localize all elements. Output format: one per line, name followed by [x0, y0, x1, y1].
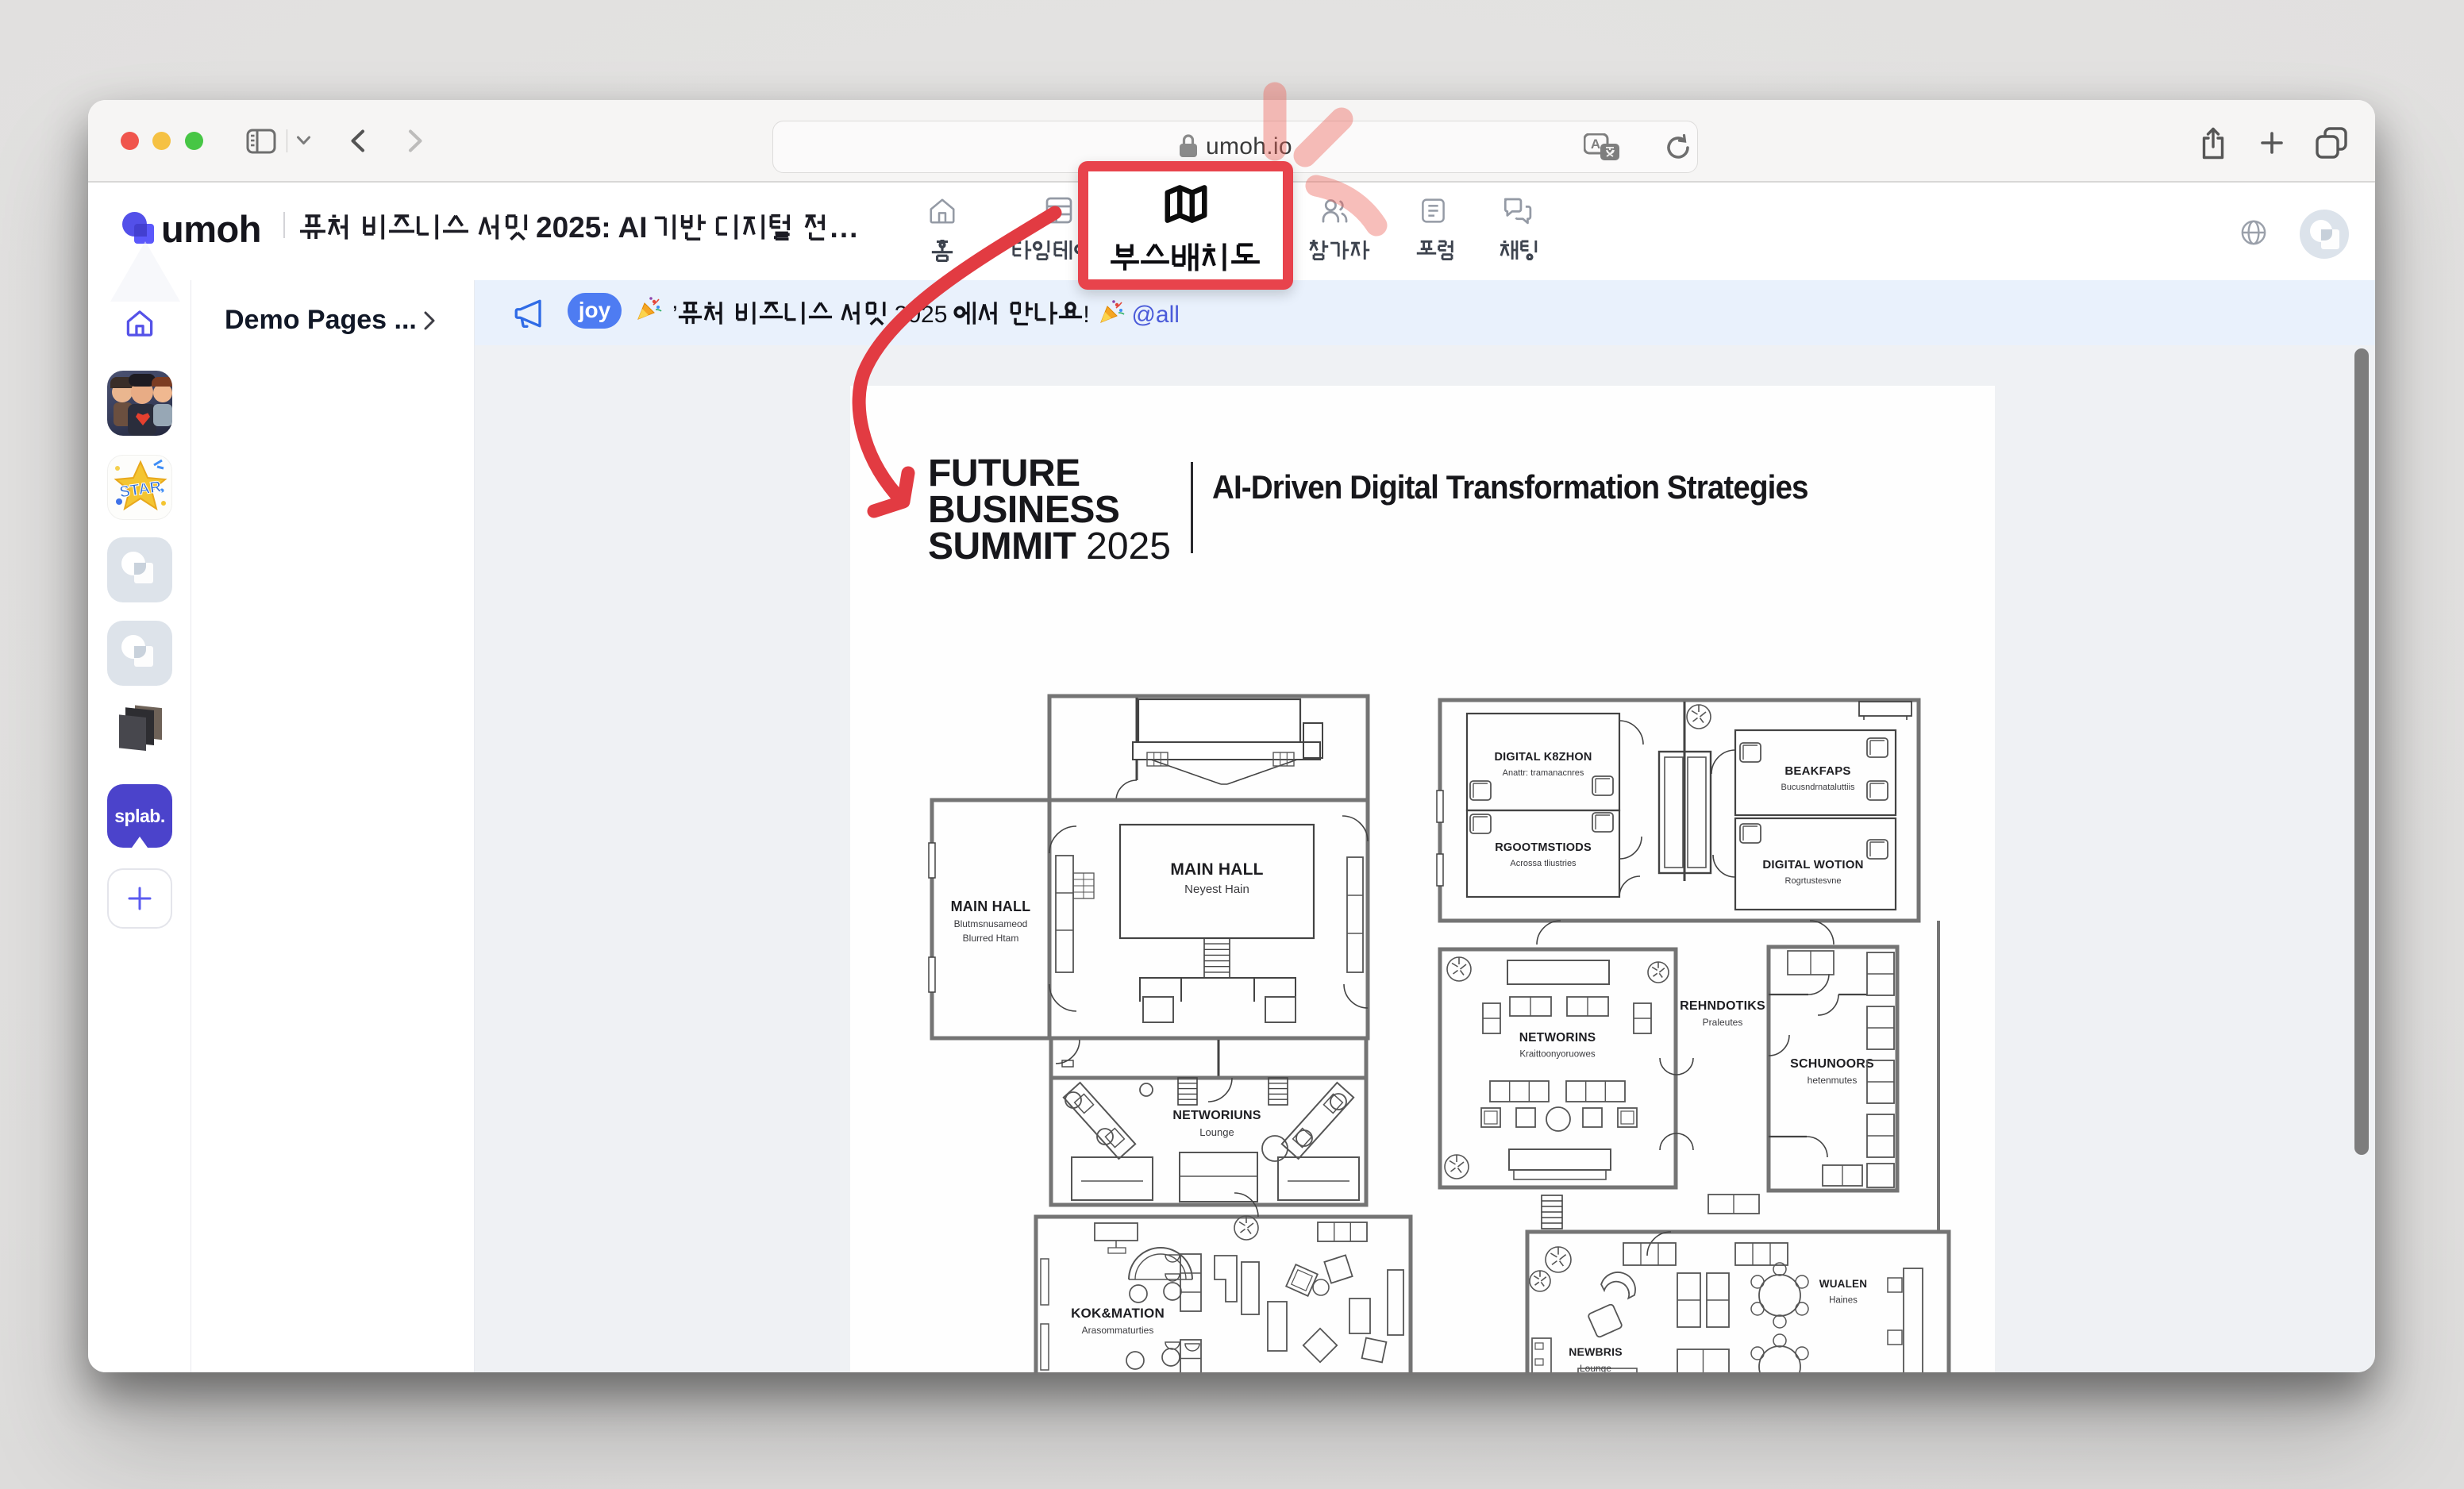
svg-text:DIGITAL K8ZHON: DIGITAL K8ZHON [1494, 751, 1592, 764]
svg-text:Blutmsnusameod: Blutmsnusameod [954, 918, 1028, 929]
svg-text:Lounge: Lounge [1580, 1363, 1611, 1372]
svg-text:Lounge: Lounge [1199, 1126, 1234, 1138]
svg-text:Haines: Haines [1829, 1296, 1858, 1306]
svg-text:MAIN HALL: MAIN HALL [951, 898, 1031, 914]
svg-text:NETWORINS: NETWORINS [1519, 1031, 1596, 1045]
svg-text:NETWORIUNS: NETWORIUNS [1172, 1109, 1261, 1122]
svg-text:BEAKFAPS: BEAKFAPS [1784, 764, 1850, 778]
svg-text:Kraittoonyoruowes: Kraittoonyoruowes [1519, 1050, 1595, 1060]
svg-text:Praleutes: Praleutes [1703, 1017, 1743, 1028]
svg-text:Anattr: tramanacnres: Anattr: tramanacnres [1503, 768, 1584, 778]
svg-text:SCHUNOORS: SCHUNOORS [1790, 1057, 1874, 1071]
svg-text:Arasommaturties: Arasommaturties [1082, 1325, 1154, 1336]
svg-text:Acrossa tliustries: Acrossa tliustries [1510, 859, 1577, 868]
svg-text:DIGITAL WOTION: DIGITAL WOTION [1762, 858, 1863, 871]
svg-text:Bucusndrnataluttiis: Bucusndrnataluttiis [1781, 783, 1855, 792]
svg-text:KOK&MATION: KOK&MATION [1071, 1306, 1165, 1321]
svg-text:Neyest Hain: Neyest Hain [1184, 883, 1249, 896]
svg-text:REHNDOTIKS: REHNDOTIKS [1680, 999, 1765, 1013]
svg-text:hetenmutes: hetenmutes [1808, 1075, 1858, 1086]
svg-text:Rogrtustesvne: Rogrtustesvne [1785, 876, 1842, 886]
svg-text:RGOOTMSTIODS: RGOOTMSTIODS [1495, 841, 1592, 854]
svg-text:WUALEN: WUALEN [1819, 1278, 1867, 1290]
svg-text:MAIN HALL: MAIN HALL [1170, 860, 1263, 879]
svg-text:NEWBRIS: NEWBRIS [1569, 1345, 1623, 1358]
svg-text:A: A [1591, 137, 1600, 152]
svg-text:Blurred Htam: Blurred Htam [963, 933, 1019, 944]
